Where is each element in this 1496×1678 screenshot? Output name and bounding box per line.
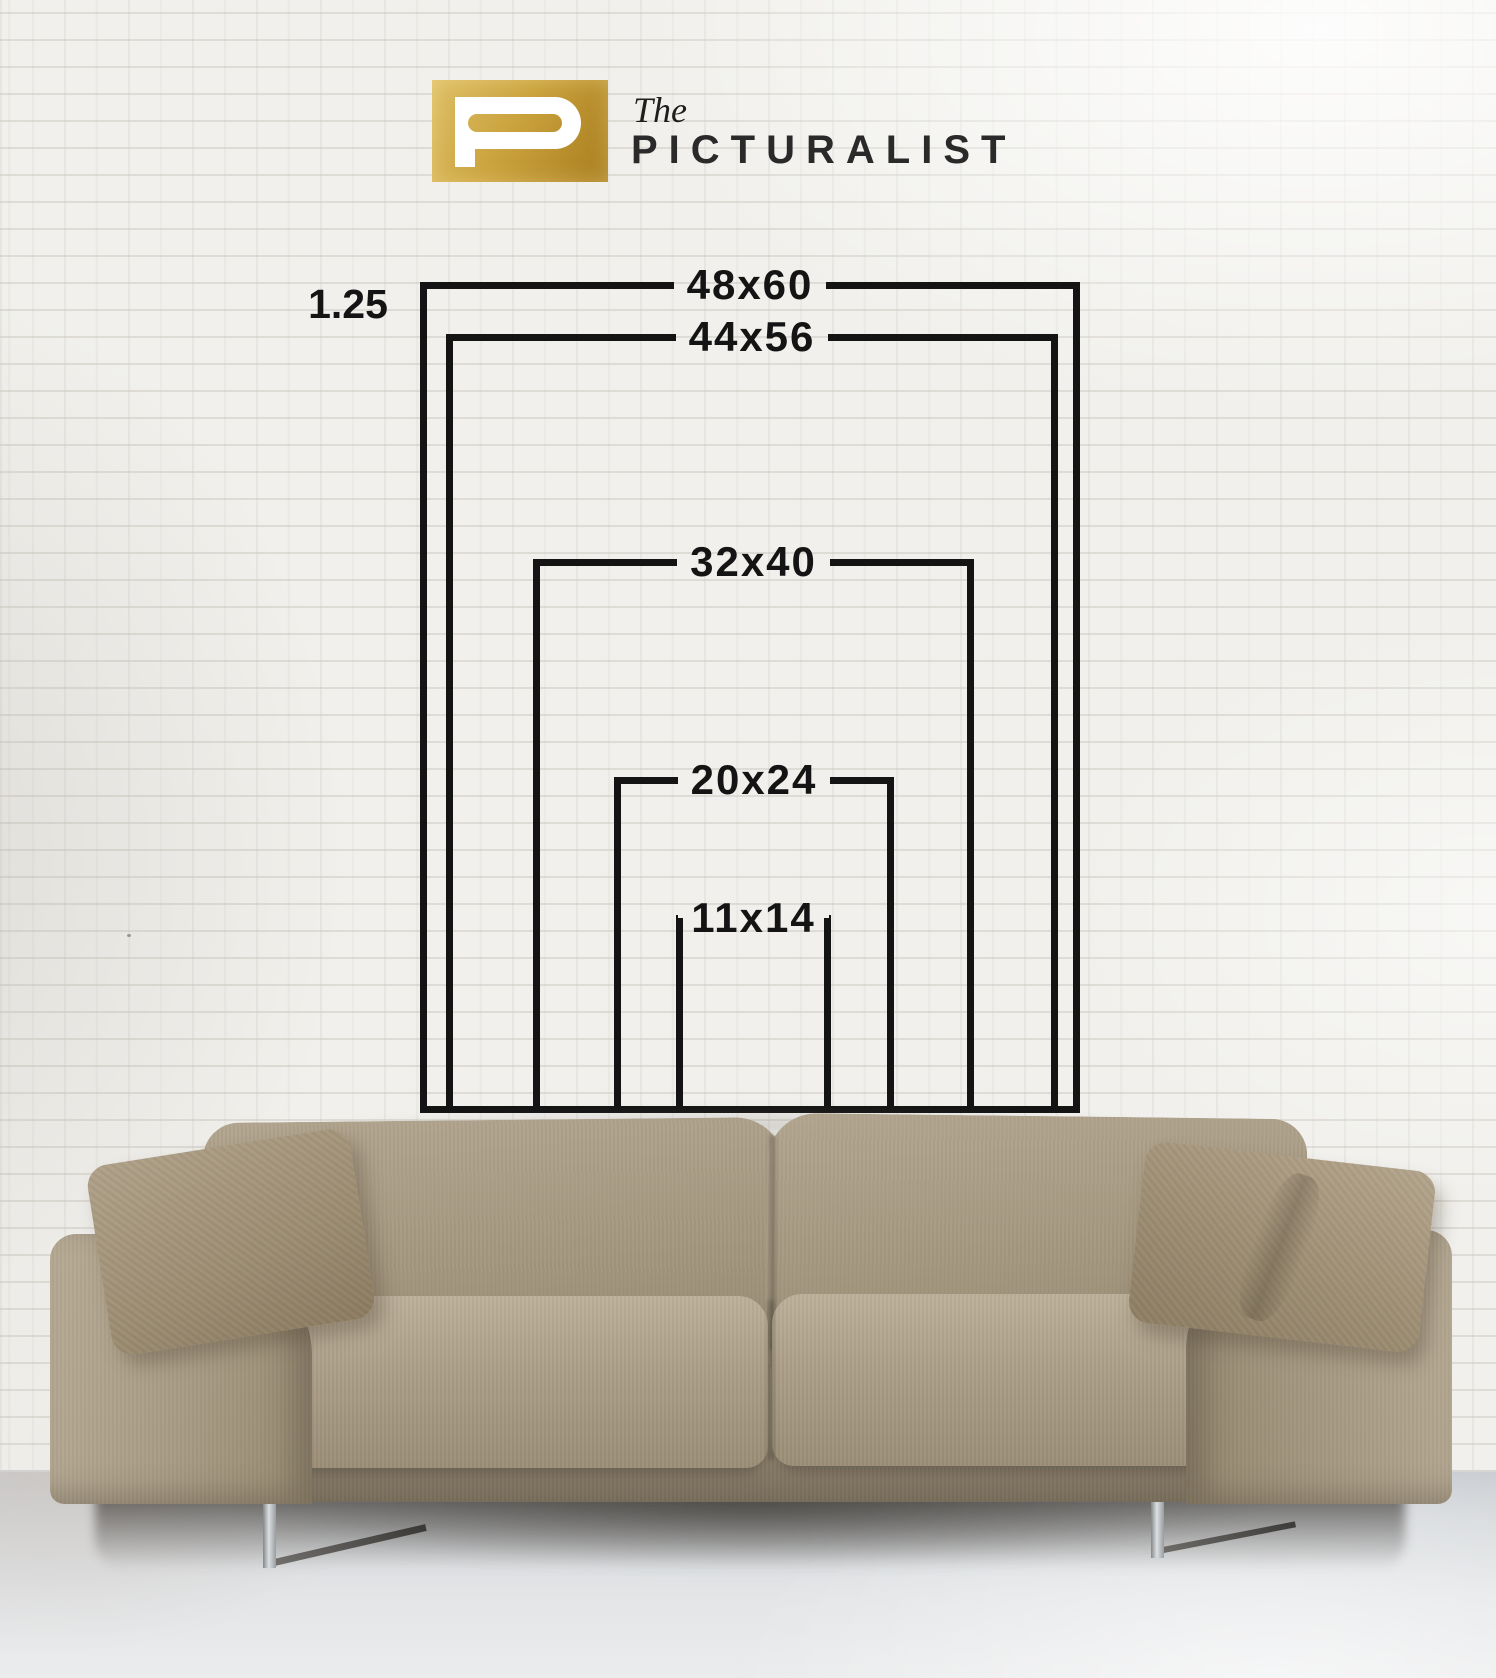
size-rect-11x14: 11x14 [676, 918, 831, 1113]
sofa-leg-left [263, 1496, 276, 1568]
size-guide-image: The PICTURALIST 1.25 48x60 44x56 32x40 2… [0, 0, 1496, 1678]
size-label-48x60: 48x60 [674, 264, 827, 306]
line-segment [420, 282, 674, 289]
size-label-11x14: 11x14 [678, 897, 828, 939]
brand-prefix: The [633, 92, 687, 128]
line-segment [826, 282, 1080, 289]
brand-name: PICTURALIST [631, 130, 1016, 170]
size-rect-top-line: 32x40 [533, 541, 974, 583]
line-segment [828, 334, 1058, 341]
size-label-44x56: 44x56 [676, 316, 829, 358]
line-segment [830, 559, 974, 566]
size-rect-top-line: 11x14 [676, 897, 831, 939]
throw-pillow-right [1127, 1140, 1438, 1354]
line-segment [533, 559, 677, 566]
line-segment [446, 334, 676, 341]
line-segment [830, 777, 894, 784]
frame-offset-label: 1.25 [292, 283, 404, 325]
size-rect-top-line: 48x60 [420, 264, 1080, 306]
throw-pillow-left [85, 1126, 378, 1357]
size-rect-top-line: 44x56 [446, 316, 1058, 358]
sofa-seat-seam [768, 1300, 774, 1460]
size-label-20x24: 20x24 [678, 759, 831, 801]
size-label-32x40: 32x40 [677, 541, 830, 583]
line-segment [614, 777, 678, 784]
size-rect-top-line: 20x24 [614, 759, 894, 801]
wall-speck [127, 934, 131, 937]
logo-p-glyph [432, 80, 608, 182]
line-segment [829, 915, 831, 922]
brand-logo-mark [432, 80, 608, 182]
